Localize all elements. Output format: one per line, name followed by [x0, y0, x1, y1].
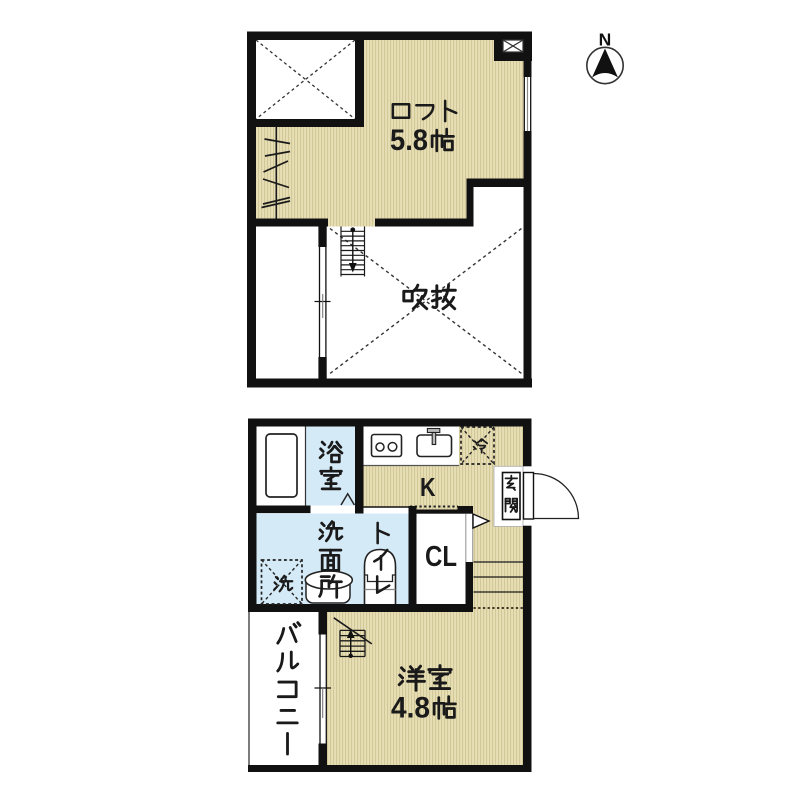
svg-text:N: N	[599, 30, 612, 50]
svg-text:CL: CL	[425, 541, 457, 573]
svg-text:K: K	[420, 472, 436, 502]
svg-text:4.8: 4.8	[391, 692, 430, 725]
svg-text:5.8: 5.8	[390, 124, 428, 157]
